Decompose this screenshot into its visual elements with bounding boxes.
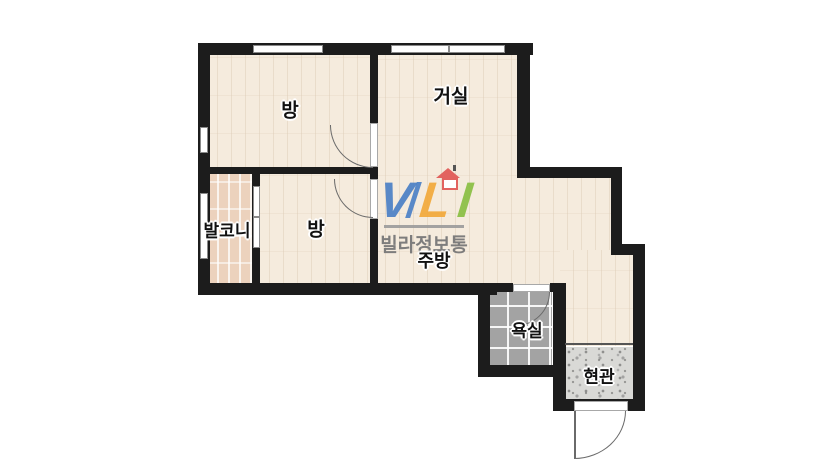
- label-entrance: 현관: [583, 363, 614, 388]
- door-arc-entrance: [574, 411, 626, 459]
- label-room-top-left: 방: [281, 96, 298, 123]
- living-room-floor: [372, 49, 522, 173]
- window-living-divider: [448, 45, 450, 53]
- wall-bottom-left: [198, 283, 497, 295]
- wall-living-right: [517, 43, 530, 178]
- window-room-top-left: [253, 45, 323, 53]
- house-chimney: [453, 165, 456, 171]
- watermark-logo: V L I 빌라정보통: [378, 176, 470, 257]
- door-leaf-entrance: [574, 411, 576, 458]
- door-opening-entrance: [574, 401, 628, 411]
- label-living-room: 거실: [434, 82, 469, 109]
- house-icon: [436, 168, 460, 188]
- window-room1-left: [200, 127, 208, 153]
- label-balcony: 발코니: [204, 217, 251, 242]
- wall-room1-room2: [198, 167, 378, 174]
- floor-plan: 방 거실 발코니 방 주방 욕실 현관 V L I 빌라정보통: [0, 0, 840, 472]
- wall-right-lower: [633, 244, 645, 411]
- entrance-threshold-line: [565, 343, 633, 345]
- label-room-middle: 방: [307, 215, 324, 242]
- kitchen-floor-lower: [560, 250, 635, 346]
- house-roof: [436, 168, 460, 178]
- wall-notch-top: [517, 167, 622, 178]
- logo-baseline-bar: [384, 225, 464, 228]
- wall-right-upper: [611, 167, 622, 255]
- wall-bathroom-right: [553, 283, 566, 407]
- wall-bathroom-left: [478, 283, 490, 377]
- wall-bathroom-top-left: [490, 283, 513, 292]
- window-balcony-inner-divider: [253, 216, 260, 218]
- house-body: [442, 178, 458, 190]
- label-bathroom: 욕실: [511, 317, 542, 342]
- door-opening-bathroom: [513, 284, 550, 292]
- label-kitchen: 주방: [417, 247, 450, 273]
